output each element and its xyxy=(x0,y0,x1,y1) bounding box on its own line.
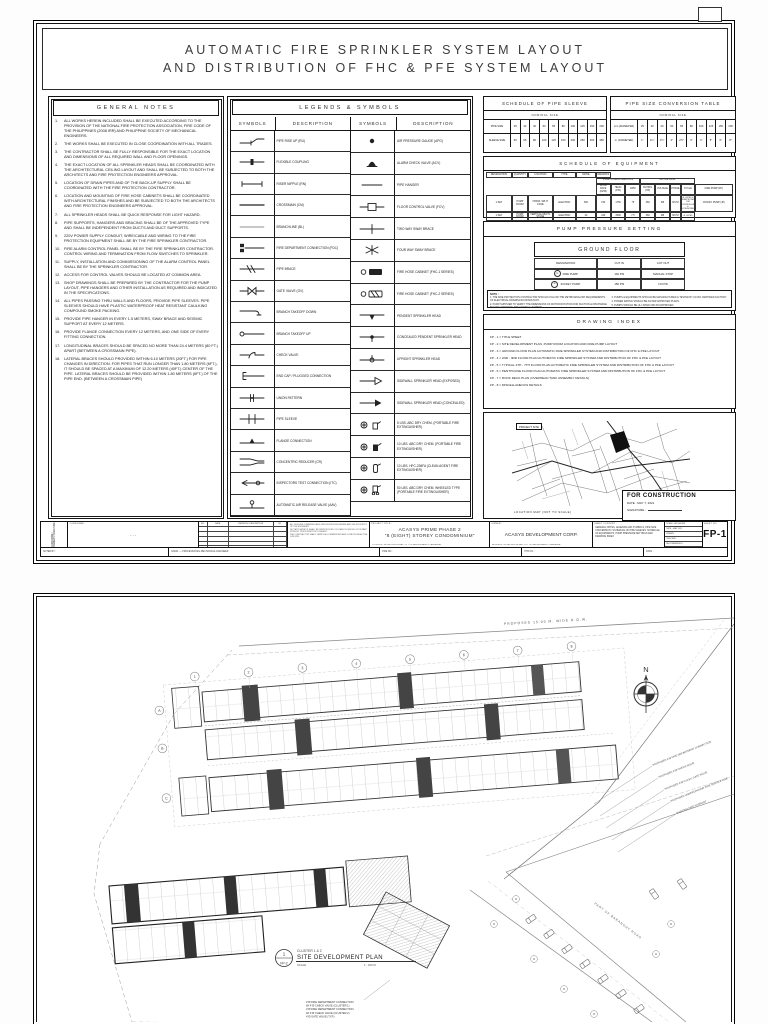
general-note-text: LOCATION AND MOUNTING OF FIRE HOSE CABIN… xyxy=(64,194,218,209)
general-note-text: LONGITUDINAL BRACES SHOULD BE SPACED NO … xyxy=(64,344,218,354)
symbol-crossmain-icon xyxy=(230,195,275,215)
eq-cell: 460 xyxy=(640,212,655,221)
legend-desc: BRANCH TAKEOFF UP xyxy=(275,323,350,343)
col-designation: DESIGNATION xyxy=(486,172,512,178)
drawing-index-item: FP - 7 = ROOF DECK PLAN (OVERHEAD TANK A… xyxy=(490,376,731,380)
eq-cell: 500 xyxy=(576,195,596,212)
symbol-reducer-icon xyxy=(230,452,275,472)
conversion-subheader: NOMINAL SIZE xyxy=(611,111,735,120)
project-subname: "8 (EIGHT) STOREY CONDOMINIUM" xyxy=(372,533,487,539)
general-notes-list: ALL WORKS HEREIN INCLUDED SHALL BE EXECU… xyxy=(55,119,218,514)
project-location: LOCATION : MC ARTHUR HI-WAY, CITY OF SAN… xyxy=(372,544,487,546)
legend-desc: BRANCH TAKEOFF DOWN xyxy=(275,302,350,322)
project-title-cell: PROJECT TITLE : ACASYS PRIME PHASE 2 "8 … xyxy=(370,522,490,547)
caption-scale-value: 1 : 400 M. xyxy=(364,963,377,967)
symbol-fdc-icon xyxy=(230,238,275,258)
table-cell: 65 xyxy=(549,120,559,133)
table-cell: 1½" xyxy=(658,134,668,147)
caption-cluster: CLUSTER 1 & 2 xyxy=(297,949,322,953)
legend-desc: BRANCHLINE (BL) xyxy=(275,216,350,236)
legends-panel: LEGENDS & SYMBOLS SYMBOLSDESCRIPTION PIP… xyxy=(227,96,473,519)
owner-cell: OWNER : ACASYS DEVELOPMENT CORP. ADDRESS… xyxy=(490,522,593,547)
pipe-sleeve-title: SCHEDULE OF PIPE SLEEVE xyxy=(484,97,606,111)
eq-cell: 150 xyxy=(596,195,611,212)
general-note-text: ALL PIPES PASSING THRU WALLS AND FLOORS,… xyxy=(64,299,218,314)
legend-desc: FLOOR CONTROL VALVE (FCV) xyxy=(395,196,470,217)
caption-detail-number: 1 xyxy=(283,952,286,957)
eq-cell: ELECTRIC xyxy=(553,195,576,212)
general-note-text: 220V POWER SUPPLY CONDUIT, WIRE/CABLE AN… xyxy=(64,234,218,244)
ownership-note-cell: ALL DESIGNS, DRAWINGS AND SPECIFICATIONS… xyxy=(288,522,370,547)
eq-cell: 60 HZ xyxy=(670,195,681,212)
symbol-branch-takeoff-down-icon xyxy=(230,302,275,322)
pipe-sleeve-table: SCHEDULE OF PIPE SLEEVE NOMINAL SIZE PIP… xyxy=(483,96,607,153)
jp-tag: JP xyxy=(551,281,558,288)
general-note-item: LATERAL BRACES SHOULD PROVIDED WITHIN 6.… xyxy=(55,357,218,382)
general-note-item: PROVIDE PIPE HANGER IN EVERY 1.5 METERS,… xyxy=(55,317,218,327)
symbol-upright-head-icon xyxy=(351,349,396,370)
road-right-label: PART OF BARANGAY ROAD xyxy=(593,902,642,941)
general-note-text: LATERAL BRACES SHOULD PROVIDED WITHIN 6.… xyxy=(64,357,218,382)
eq-cell: ELECTRIC xyxy=(553,212,576,221)
general-note-text: ACCESS FOR CONTROL VALVES SHOULD BE LOCA… xyxy=(64,273,202,278)
symbol-air-pressure-gauge-icon xyxy=(351,131,396,152)
eq-cell: VERTICAL MULTI-STAGE xyxy=(528,212,553,221)
legend-desc: AUTOMATIC AIR RELEASE VALVE (AAV) xyxy=(275,495,350,515)
general-note-item: 220V POWER SUPPLY CONDUIT, WIRE/CABLE AN… xyxy=(55,234,218,244)
table-cell: 8" xyxy=(726,134,735,147)
table-cell: 40 xyxy=(530,120,540,133)
sheet-content-text: GENERAL NOTES, LEGENDS AND SYMBOLS, PIPE… xyxy=(595,527,662,539)
jp-cut-out: 170 PSI xyxy=(641,279,685,290)
eq-cell: 3500 xyxy=(611,212,626,221)
description-header: DESCRIPTION xyxy=(276,117,349,130)
site-development-plan: PROPOSED 15.00 M. WIDE R.O.W. xyxy=(34,594,734,1022)
equipment-table: DESIGNATION QUANTITY LOCATION TYPE DRIVE… xyxy=(486,172,733,215)
table-cell: 1¼" xyxy=(648,134,658,147)
top-road-label: PROPOSED 15.00 M. WIDE R.O.W. xyxy=(504,617,588,626)
svg-text:4: 4 xyxy=(355,662,357,666)
caption-sheet-ref: FP-2 xyxy=(280,962,287,966)
legend-desc: TWO WAY SWAY BRACE xyxy=(395,218,470,239)
symbol-branchline-icon xyxy=(230,216,275,236)
mm-row: mm (DIAMETER)253240506580100125150200 xyxy=(611,120,735,134)
drawing-index-item: FP - 4 = 2ND - 3RD FLOOR PLAN AUTOMATIC … xyxy=(490,356,731,360)
drawing-index-item: FP - 8 = MISCELLANEOUS DETAILS xyxy=(490,383,731,387)
general-note-item: ALL WORKS HEREIN INCLUDED SHALL BE EXECU… xyxy=(55,119,218,139)
pump-note: 1. THE FIRE PROTECTION CONTRACTOR SHOULD… xyxy=(490,296,608,302)
col-location: LOCATION xyxy=(528,172,553,178)
pipe-sleeve-subheader: NOMINAL SIZE xyxy=(484,111,606,120)
legend-desc: GATE VALVE (GV) xyxy=(275,281,350,301)
legend-desc: INSPECTORS TEST CONNECTION (ITC) xyxy=(275,473,350,493)
table-cell: 50 xyxy=(667,120,677,133)
general-note-item: LOCATION OF DRAIN PIPES AND OF THE BACK-… xyxy=(55,181,218,191)
svg-text:2: 2 xyxy=(247,670,249,674)
general-note-text: ALL SPRINKLER HEADS SHALL BE QUICK RESPO… xyxy=(64,213,201,218)
symbol-pipe-brace-icon xyxy=(230,259,275,279)
jp-cut-in: 150 PSI xyxy=(597,279,641,290)
svg-text:PROPOSED 4"Ø CHECK VALVE: PROPOSED 4"Ø CHECK VALVE xyxy=(658,761,695,779)
general-note-text: SHOP DRAWINGS SHALL BE PREPARED BY THE C… xyxy=(64,281,218,296)
legend-desc: FIRE HOSE CABINET (FHC-2 SERIES) xyxy=(395,284,470,305)
eq-cell: 7.5 xyxy=(625,212,640,221)
parked-cars xyxy=(525,878,686,1013)
access-road: PART OF BARANGAY ROAD xyxy=(470,776,734,1022)
symbol-pipe-hanger-icon xyxy=(351,175,396,196)
general-note-item: LONGITUDINAL BRACES SHOULD BE SPACED NO … xyxy=(55,344,218,354)
meta-rows-cell: SCALE : AS SHOWNDATE : MAY 2021DRAWN :CH… xyxy=(665,522,703,547)
legend-desc: PIPE SLEEVE xyxy=(275,409,350,429)
legend-desc: PENDENT SPRINKLER HEAD xyxy=(395,305,470,326)
svg-text:4"Ø GATE VALVE (TYP.): 4"Ø GATE VALVE (TYP.) xyxy=(306,1014,335,1018)
eq-cell: FIRE PUMP (FP) xyxy=(695,184,733,196)
legend-desc: PIPE RISE UP (RU) xyxy=(275,131,350,151)
signature-cell: CONFORME : . . . xyxy=(68,522,198,547)
pump-pressure-table: DESIGNATION CUT IN CUT OUT FPFIRE PUMP 1… xyxy=(534,258,685,290)
drawing-index-item: FP - 2 = SITE DEVELOPMENT PLAN, PUMP ROO… xyxy=(490,342,731,346)
col-head: HEAD (PSI) xyxy=(611,184,626,196)
for-construction-stamp: FOR CONSTRUCTION DATE : MAY 7, 2021 SIGN… xyxy=(622,490,736,521)
inch-row: in. (DIAMETER)1"1¼"1½"2"2½"3"4"5"6"8" xyxy=(611,134,735,147)
table-cell: 150 xyxy=(559,134,569,147)
svg-text:4"Ø FIRE DEPARTMENT CONNECTION: 4"Ø FIRE DEPARTMENT CONNECTION xyxy=(306,1007,354,1011)
legend-desc: CROSSMAIN (CM) xyxy=(275,195,350,215)
symbol-end-cap-icon xyxy=(230,366,275,386)
svg-text:5: 5 xyxy=(409,657,411,661)
drawing-index-panel: DRAWING INDEX FP - 1 = TITLE SHEETFP - 2… xyxy=(483,314,736,409)
legend-desc: FIRE HOSE CABINET (FHC-1 SERIES) xyxy=(395,262,470,283)
eq-cell: 1 SET xyxy=(486,212,512,221)
eq-cell: 1750 xyxy=(611,195,626,212)
table-cell: 25 xyxy=(511,120,521,133)
eq-cell: 160 xyxy=(596,212,611,221)
general-note-item: THE WORKS SHALL BE EXECUTED IN CLOSE COO… xyxy=(55,142,218,147)
trees xyxy=(491,896,675,1018)
legend-desc: UPRIGHT SPRINKLER HEAD xyxy=(395,349,470,370)
building-cluster-2 xyxy=(109,856,415,964)
col-designation: DESIGNATION xyxy=(534,258,597,269)
legend-desc: CONCEALED PENDENT SPRINKLER HEAD xyxy=(395,327,470,348)
table-cell: 200 xyxy=(569,134,579,147)
general-note-text: LOCATION OF DRAIN PIPES AND OF THE BACK-… xyxy=(64,181,218,191)
general-note-text: THE CONTRACTOR SHALL BE FULLY RESPONSIBL… xyxy=(64,150,218,160)
band-label: NOTED BY : xyxy=(41,548,169,556)
band-label: PTR NO. : xyxy=(522,548,644,556)
col-rating: RATING (HP) xyxy=(640,184,655,196)
col-cut-out: CUT OUT xyxy=(641,258,685,269)
pump-note: 5. PUMPS SHOULD BE UL LISTED AND FM APPR… xyxy=(612,304,730,307)
table-cell: 80 xyxy=(530,134,540,147)
symbol-gate-valve-icon xyxy=(230,281,275,301)
svg-text:PROPOSED 4"Ø FIRE DEPARTMENT C: PROPOSED 4"Ø FIRE DEPARTMENT CONNECTION xyxy=(652,740,712,767)
symbol-two-way-brace-icon xyxy=(351,218,396,239)
general-note-text: THE EXACT LOCATION OF ALL SPRINKLER HEAD… xyxy=(64,163,218,178)
pipe-size-row: PIPE SIZE253240506580100125150200 xyxy=(484,120,606,134)
symbol-flange-connection-icon xyxy=(230,430,275,450)
sheet-title-box: AUTOMATIC FIRE SPRINKLER SYSTEM LAYOUT A… xyxy=(42,28,728,90)
general-note-item: FIRE ALARM CONTROL PANEL SHALL BE BY THE… xyxy=(55,247,218,257)
col-remarks: REMARKS xyxy=(596,172,611,178)
pump-note: 3. PUMPS & EQUIPMENTS SHOULD BE MANUFACT… xyxy=(612,296,730,299)
drawing-index-item: FP - 1 = TITLE SHEET xyxy=(490,335,731,339)
eq-cell: 40 xyxy=(576,212,596,221)
title-block-bottom-band: NOTED BY : ENGR. — PROFESSIONAL MECHANIC… xyxy=(40,548,728,557)
caption-scale-label: SCALE xyxy=(297,963,306,967)
col-voltage: VOLTAGE xyxy=(655,184,670,196)
project-site-label: PROJECT SITE xyxy=(516,423,542,430)
symbol-four-way-brace-icon xyxy=(351,240,396,261)
building-cluster-1: 1 2 3 4 5 6 7 8 A B C xyxy=(152,638,635,828)
table-cell: 200 xyxy=(597,120,606,133)
svg-text:1: 1 xyxy=(194,675,196,679)
sleeve-size-row: SLEEVE SIZE506580100125150200250300350 xyxy=(484,134,606,147)
revision-table: NO.DATEREVISION / DESCRIPTIONBY xyxy=(199,522,288,547)
symbol-pendent-head-icon xyxy=(351,305,396,326)
row-fire-pump: FPFIRE PUMP xyxy=(534,269,597,280)
drawing-index-title: DRAWING INDEX xyxy=(484,315,735,330)
eq-cell: 3Ø xyxy=(655,195,670,212)
owner-address: ADDRESS : MC ARTHUR HI-WAY, CITY OF SAN … xyxy=(492,544,590,546)
general-note-item: THE EXACT LOCATION OF ALL SPRINKLER HEAD… xyxy=(55,163,218,178)
stamp-signature: SIGNATURE : xyxy=(627,507,731,512)
plan-caption: 1 FP-2 CLUSTER 1 & 2 SITE DEVELOPMENT PL… xyxy=(276,949,417,967)
fp-tag: FP xyxy=(554,270,561,277)
band-label: DATE : xyxy=(644,548,727,556)
table-cell: 350 xyxy=(597,134,606,147)
corner-tab xyxy=(698,7,722,22)
ground-floor-header: GROUND FLOOR xyxy=(534,242,685,257)
conforme-vertical-cell: CONFORME / OWNER'S SIGNATURE xyxy=(41,522,68,547)
legend-desc: 50 LBS. ABC DRY CHEM. WHEELED TYPE (PORT… xyxy=(395,480,470,501)
table-cell: 150 xyxy=(716,120,726,133)
svg-text:W/ 4"Ø CHECK VALVE (CLUSTER 1): W/ 4"Ø CHECK VALVE (CLUSTER 1) xyxy=(306,1004,350,1008)
general-note-text: ALL WORKS HEREIN INCLUDED SHALL BE EXECU… xyxy=(64,119,218,139)
pump-pressure-title: PUMP PRESSURE SETTING xyxy=(484,222,735,237)
general-notes-panel: GENERAL NOTES ALL WORKS HEREIN INCLUDED … xyxy=(48,96,224,519)
general-note-text: PIPE SUPPORTS, HANGERS AND BRACING SHALL… xyxy=(64,221,218,231)
grid-letter-labels: A B C xyxy=(158,709,168,801)
sheet-fp2-page: PROPOSED 15.00 M. WIDE R.O.W. xyxy=(33,593,735,1024)
symbol-extinguisher-cleanagent-icon xyxy=(351,458,396,479)
general-note-item: SHOP DRAWINGS SHALL BE PREPARED BY THE C… xyxy=(55,281,218,296)
table-cell: 32 xyxy=(648,120,658,133)
symbol-flexible-coupling-icon xyxy=(230,152,275,172)
eq-cell: UL LISTED & FM APPROVED C/W CONTROLLER &… xyxy=(681,195,695,212)
symbol-extinguisher-10lbs-icon xyxy=(351,436,396,457)
symbol-extinguisher-5lbs-icon xyxy=(351,414,396,435)
sheet-title-line1: AUTOMATIC FIRE SPRINKLER SYSTEM LAYOUT xyxy=(185,43,585,57)
symbol-branch-takeoff-up-icon xyxy=(230,323,275,343)
table-cell: 3" xyxy=(687,134,697,147)
table-cell: 150 xyxy=(588,120,598,133)
symbols-header: SYMBOLS xyxy=(351,117,397,130)
pump-note: 4. POWER RATING SHOULD BE AS PER APPROVE… xyxy=(612,300,730,303)
col-phase: PHASE xyxy=(670,184,681,196)
symbol-pipe-rise-up-icon xyxy=(230,131,275,151)
general-note-text: SUPPLY, INSTALLATION AND COMMISSIONING O… xyxy=(64,260,218,270)
signature-dots: . . . xyxy=(68,522,197,547)
svg-text:EXISTING FIRE HYDRANT: EXISTING FIRE HYDRANT xyxy=(676,799,708,815)
symbol-union-icon xyxy=(230,388,275,408)
sheet-no-cell: SHEET NO. FP-1 xyxy=(703,522,727,547)
map-caption: LOCATION MAP (NOT TO SCALE) xyxy=(514,510,571,514)
stamp-date: DATE : MAY 7, 2021 xyxy=(627,501,731,505)
eq-cell: HORIZ. SPLIT CASE xyxy=(528,195,553,212)
legend-desc: END CAP / PLUGGED CONNECTION xyxy=(275,366,350,386)
fp-cut-out: MANUAL STOP xyxy=(641,269,685,280)
legends-right-column: SYMBOLSDESCRIPTION AIR PRESSURE GAUGE (A… xyxy=(350,117,471,516)
table-cell: 40 xyxy=(658,120,668,133)
grid-bubbles-left xyxy=(155,706,172,803)
general-note-item: ACCESS FOR CONTROL VALVES SHOULD BE LOCA… xyxy=(55,273,218,278)
drawing-index-list: FP - 1 = TITLE SHEETFP - 2 = SITE DEVELO… xyxy=(490,335,731,406)
north-compass-icon: N xyxy=(634,665,658,713)
table-cell: 50 xyxy=(540,120,550,133)
conversion-title: PIPE SIZE CONVERSION TABLE xyxy=(611,97,735,111)
general-note-item: PROVIDE FLANGE CONNECTION EVERY 12 METER… xyxy=(55,330,218,340)
table-cell: 65 xyxy=(521,134,531,147)
general-note-item: PIPE SUPPORTS, HANGERS AND BRACING SHALL… xyxy=(55,221,218,231)
table-cell: 2½" xyxy=(677,134,687,147)
table-cell: 32 xyxy=(521,120,531,133)
north-label: N xyxy=(643,665,648,674)
eq-cell: UL LISTED xyxy=(681,212,695,221)
legend-desc: FIRE DEPARTMENT CONNECTION (FDC) xyxy=(275,238,350,258)
legend-desc: 10 LBS. HFC-236FA (CLEAN AGENT FIRE EXTI… xyxy=(395,458,470,479)
general-note-text: PROVIDE FLANGE CONNECTION EVERY 12 METER… xyxy=(64,330,218,340)
top-road: PROPOSED 15.00 M. WIDE R.O.W. xyxy=(227,617,734,655)
table-cell: 4" xyxy=(697,134,707,147)
table-cell: 80 xyxy=(687,120,697,133)
symbol-concealed-pendent-icon xyxy=(351,327,396,348)
drawing-index-item: FP - 6 = PENTHOUSE FLOOR PLAN AUTOMATIC … xyxy=(490,369,731,373)
symbol-riser-nipple-icon xyxy=(230,174,275,194)
table-cell: 25 xyxy=(638,120,648,133)
table-cell: 125 xyxy=(578,120,588,133)
legends-left-column: SYMBOLSDESCRIPTION PIPE RISE UP (RU) FLE… xyxy=(230,117,350,516)
sheet-number: FP-1 xyxy=(703,522,727,547)
col-type: TYPE xyxy=(553,172,576,178)
pump-pressure-notes: NOTE : 1. THE FIRE PROTECTION CONTRACTOR… xyxy=(487,290,732,308)
table-cell: 80 xyxy=(559,120,569,133)
legend-desc: UNION PATTERN xyxy=(275,388,350,408)
table-cell: 200 xyxy=(726,120,735,133)
symbol-fhc1-icon xyxy=(351,262,396,283)
fdc-annotation: 4"Ø FIRE DEPARTMENT CONNECTION W/ 4"Ø CH… xyxy=(306,980,390,1018)
legend-desc: 5 LBS. ABC DRY CHEM. (PORTABLE FIRE EXTI… xyxy=(395,414,470,435)
drawing-index-item: FP - 3 = GROUND FLOOR PLAN AUTOMATIC FIR… xyxy=(490,349,731,353)
legend-desc: RISER NIPPLE (RN) xyxy=(275,174,350,194)
legend-desc: FLANGE CONNECTION xyxy=(275,430,350,450)
eq-cell: JOCKEY PUMP (JP) xyxy=(695,195,733,212)
legend-desc: CHECK VALVE xyxy=(275,345,350,365)
sheet-title-line2: AND DISTRIBUTION OF FHC & PFE SYSTEM LAY… xyxy=(163,61,607,75)
legend-desc: 10 LBS. ABC DRY CHEM. (PORTABLE FIRE EXT… xyxy=(395,436,470,457)
legend-desc: CONCENTRIC REDUCER (CR) xyxy=(275,452,350,472)
symbol-fhc2-icon xyxy=(351,284,396,305)
general-notes-title: GENERAL NOTES xyxy=(53,100,219,116)
general-note-item: ALL PIPES PASSING THRU WALLS AND FLOORS,… xyxy=(55,299,218,314)
title-block: CONFORME / OWNER'S SIGNATURE CONFORME : … xyxy=(40,521,728,548)
col-cut-in: CUT IN xyxy=(597,258,641,269)
drawing-index-item: FP - 5 = TYPICAL 4TH - 7TH FLOOR PLAN AU… xyxy=(490,363,731,367)
eq-cell: 60 HZ xyxy=(670,212,681,221)
svg-text:8: 8 xyxy=(570,644,572,648)
general-note-text: PROVIDE PIPE HANGER IN EVERY 1.5 METERS,… xyxy=(64,317,218,327)
project-site-blob xyxy=(610,431,630,453)
svg-text:6: 6 xyxy=(463,653,465,657)
general-note-text: FIRE ALARM CONTROL PANEL SHALL BE BY THE… xyxy=(64,247,218,257)
band-label: PME NO. : xyxy=(380,548,522,556)
col-rpm: RPM xyxy=(625,184,640,196)
table-cell: 125 xyxy=(549,134,559,147)
legend-desc: PIPE HANGER xyxy=(395,175,470,196)
equipment-schedule-panel: SCHEDULE OF EQUIPMENT DESIGNATION QUANTI… xyxy=(483,156,736,218)
description-header: DESCRIPTION xyxy=(397,117,470,130)
row-jockey-pump: JPJOCKEY PUMP xyxy=(534,279,597,290)
symbol-floor-control-valve-icon xyxy=(351,196,396,217)
legend-desc: PIPE BRACE xyxy=(275,259,350,279)
col-drive: DRIVE xyxy=(576,172,596,178)
general-note-item: SUPPLY, INSTALLATION AND COMMISSIONING O… xyxy=(55,260,218,270)
sheet-fp1-page: AUTOMATIC FIRE SPRINKLER SYSTEM LAYOUT A… xyxy=(33,20,735,564)
table-cell: 1" xyxy=(638,134,648,147)
eq-cell: PUMP ROOM xyxy=(512,212,528,221)
eq-cell: 1 SET xyxy=(486,195,512,212)
ownership-note-line: THE CONTRACTOR SHALL VERIFY ALL DIMENSIO… xyxy=(290,534,367,539)
symbol-extinguisher-wheeled-icon xyxy=(351,480,396,501)
legend-desc: SIDEWALL SPRINKLER HEAD (EXPOSED) xyxy=(395,371,470,392)
table-cell: 2" xyxy=(667,134,677,147)
general-note-item: LOCATION AND MOUNTING OF FIRE HOSE CABIN… xyxy=(55,194,218,209)
svg-text:W/ 4"Ø CHECK VALVE (CLUSTER 2): W/ 4"Ø CHECK VALVE (CLUSTER 2) xyxy=(306,1011,350,1015)
symbol-check-valve-icon xyxy=(230,345,275,365)
sheet-content-cell: SHEET CONTENT : GENERAL NOTES, LEGENDS A… xyxy=(593,522,665,547)
stamp-title: FOR CONSTRUCTION xyxy=(627,493,731,499)
meta-row: RECOMMENDED : xyxy=(665,542,702,547)
symbol-alarm-check-valve-icon xyxy=(351,153,396,174)
table-cell: 65 xyxy=(677,120,687,133)
symbols-header: SYMBOLS xyxy=(230,117,276,130)
legend-desc: ALARM CHECK VALVE (ACV) xyxy=(395,153,470,174)
svg-text:7: 7 xyxy=(517,649,519,653)
owner-name: ACASYS DEVELOPMENT CORP. xyxy=(492,527,590,543)
eq-cell: PUMP ROOM xyxy=(512,195,528,212)
legends-table: SYMBOLSDESCRIPTION PIPE RISE UP (RU) FLE… xyxy=(230,117,470,516)
general-note-text: THE WORKS SHALL BE EXECUTED IN CLOSE COO… xyxy=(64,142,213,147)
general-note-item: ALL SPRINKLER HEADS SHALL BE QUICK RESPO… xyxy=(55,213,218,218)
general-note-item: THE CONTRACTOR SHALL BE FULLY RESPONSIBL… xyxy=(55,150,218,160)
legend-desc: SIDEWALL SPRINKLER HEAD (CONCEALED) xyxy=(395,393,470,414)
svg-text:4"Ø FIRE DEPARTMENT CONNECTION: 4"Ø FIRE DEPARTMENT CONNECTION xyxy=(306,1000,354,1004)
pump-note: 2. PUMP SUPPLIER TO VERIFY THE DIMENSION… xyxy=(490,303,608,309)
band-label: ENGR. — PROFESSIONAL MECHANICAL ENGINEER xyxy=(169,548,380,556)
eq-cell: 3Ø xyxy=(655,212,670,221)
table-cell: 100 xyxy=(697,120,707,133)
legend-desc: AIR PRESSURE GAUGE (APG) xyxy=(395,131,470,152)
legend-desc: FLEXIBLE COUPLING xyxy=(275,152,350,172)
table-cell: 5" xyxy=(707,134,717,147)
symbol-inspectors-test-icon xyxy=(230,473,275,493)
symbol-sidewall-concealed-icon xyxy=(351,393,396,414)
col-cycle: CYCLE xyxy=(681,184,695,196)
pump-pressure-panel: PUMP PRESSURE SETTING GROUND FLOOR DESIG… xyxy=(483,221,736,311)
equipment-title: SCHEDULE OF EQUIPMENT xyxy=(484,157,735,171)
conversion-table: PIPE SIZE CONVERSION TABLE NOMINAL SIZE … xyxy=(610,96,736,153)
eq-cell: 75 xyxy=(625,195,640,212)
col-flow: FLOW RATE (GPM) xyxy=(596,184,611,196)
